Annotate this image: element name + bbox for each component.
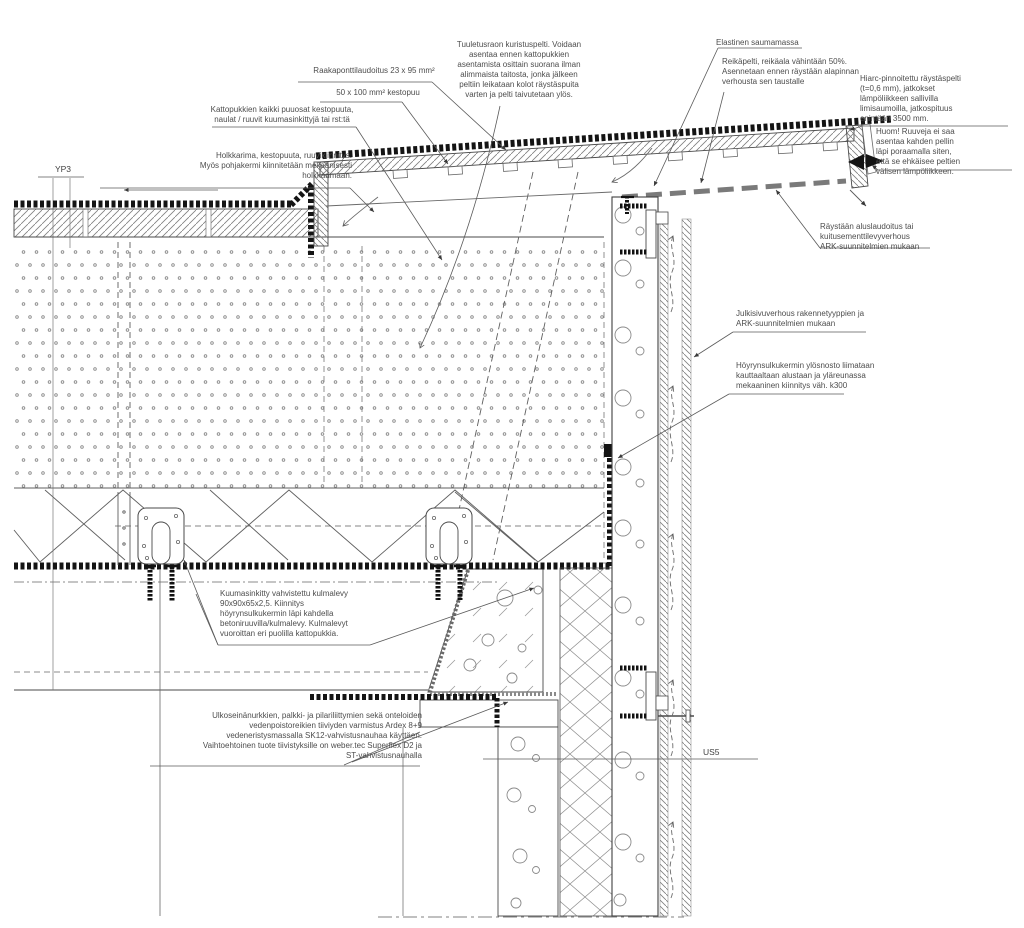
sloped-eave-roof [316, 119, 893, 206]
wall-insulation [560, 568, 612, 916]
label-vapour-barrier-upstand: Höyrynsulkukermin ylösnosto liimataan ka… [736, 361, 921, 391]
label-roof-trestles: Kattopukkien kaikki puuosat kestopuuta, … [206, 105, 358, 125]
drip-edge-arrow [850, 190, 866, 206]
roof-insulation-layer [14, 237, 604, 564]
angle-plate-fixings [138, 508, 472, 602]
angle-plate [138, 508, 184, 602]
label-elastic-sealant: Elastinen saumamassa [716, 38, 836, 48]
label-batten-50x100: 50 x 100 mm² kestopuu [316, 88, 440, 98]
inner-concrete-leaf [498, 727, 558, 916]
label-waterproofing-note: Ulkoseinänurkkien, palkki- ja pilariliit… [128, 711, 422, 761]
label-facade-cladding: Julkisivuverhous rakennetyyppien ja ARK-… [736, 309, 911, 329]
roof-type-mark: YP3 [46, 164, 80, 174]
label-perforated-sheet: Reikäpelti, reikäala vähintään 50%. Asen… [722, 57, 872, 87]
label-eave-flashing: Hiarc-pinnoitettu räystäspelti (t=0,6 mm… [860, 74, 1012, 124]
detail-drawing-linework [0, 0, 1024, 928]
furring-strip [660, 213, 668, 916]
label-curb-batten: Holkkarima, kestopuuta, ruuvikiinnitys. … [94, 151, 352, 181]
label-angle-plate: Kuumasinkitty vahvistettu kulmalevy 90x9… [220, 589, 375, 639]
cast-concrete-joint [428, 569, 543, 692]
detail-drawing-canvas: YP3 US5 Raakaponttilaudoitus 23 x 95 mm²… [0, 0, 1024, 928]
wall-frame-column [612, 197, 658, 916]
facade-cladding-board [682, 219, 691, 916]
edge-beam [420, 700, 558, 727]
ventilation-flow-arrows [670, 236, 674, 898]
label-vent-restrictor-plate: Tuuletusraon kuristuspelti. Voidaan asen… [428, 40, 610, 100]
label-soffit-boarding: Räystään aluslaudoitus tai kuitusementti… [820, 222, 970, 252]
roof-bracing-band [14, 488, 604, 562]
wall-type-mark: US5 [703, 747, 743, 757]
label-screw-note: Huom! Ruuveja ei saa asentaa kahden pell… [876, 127, 1024, 177]
roofspace-airflow-arrow [343, 197, 378, 226]
